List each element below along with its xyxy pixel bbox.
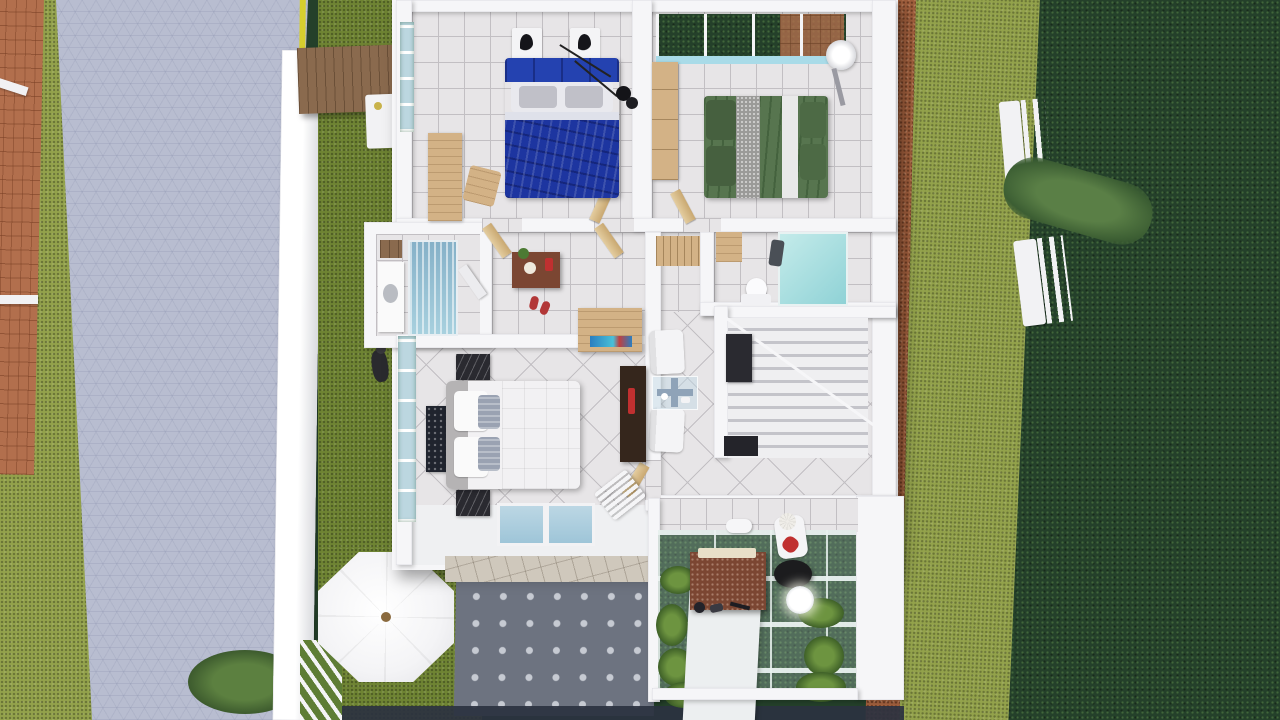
window-bedroom-blue [400,22,414,132]
floor-lamp-shade [774,560,812,588]
boundary-wall [273,50,322,720]
floor-lamp-glow [786,586,814,614]
glass-coffee-table [652,376,698,410]
toilet-tank [741,294,771,305]
floor-plan-render [0,0,1280,720]
desk [428,133,462,221]
blue-double-bed [505,58,619,198]
nightstand [456,354,490,380]
potted-plant [518,248,529,259]
ceiling-pendant [626,97,638,109]
bed-pillow-green [706,146,736,186]
linen-closet [656,236,700,266]
garden-bench [1013,235,1073,326]
bed-pillow-plaid [478,437,500,471]
floor-rug-art [426,406,448,472]
bed-throw-gray [736,96,760,198]
lamp-shade [520,34,533,54]
armchair [649,329,685,375]
aquarium-cabinet [578,308,642,352]
curb-shadow-band [300,706,904,720]
shower-enclosure-aqua [778,232,848,306]
nightstand [456,490,490,516]
bed-duvet-blue [505,120,619,198]
armchair [649,407,685,453]
bed-pillow-green [800,144,826,180]
window-planter-bedroom-green [656,14,846,58]
window-mullions [656,14,846,58]
bed-duvet-white [502,381,580,489]
bed-pillow-gray [565,86,603,108]
sink [383,284,398,303]
plant [656,604,688,646]
desk-bottle [694,602,705,613]
table-remote [681,397,690,403]
tv-panel-vase [628,388,635,414]
bed-pillow-gray [519,86,557,108]
bed-stripe-white [782,96,798,198]
terrace-tile-strip [654,498,858,532]
desk-pen [730,602,750,611]
wardrobe [652,62,678,180]
knit-ball [779,513,796,530]
desk-paper [698,548,756,558]
porch-skylight [497,503,546,546]
white-double-bed [446,381,580,489]
table-cup [661,393,668,400]
bed-pillow-green [706,100,736,140]
lamp-shade [578,34,591,54]
tv-panel [620,366,646,462]
washer-knob [374,102,382,110]
umbrella-pole-top [381,612,391,622]
porch-skylight [546,503,595,546]
bed-pillow-green [800,102,826,138]
green-double-bed [704,96,828,198]
terrace-desk [690,552,766,610]
window-glass-edge [656,56,846,64]
stone-entry-steps [445,556,657,582]
wall-outer-right [872,0,896,512]
standing-fan [826,40,856,70]
paper-roll [726,519,752,533]
wall-bedroom-divider [632,0,652,230]
stair-base-step [724,436,758,456]
vanity [716,232,742,262]
terrace-wall-right [856,496,904,700]
wall-master-top [396,334,586,348]
decor-plate [524,262,536,274]
dotted-paved-patio [454,576,656,716]
bath-shelf [380,240,402,258]
stair-storage-cabinet [726,334,752,382]
bed-pillow-plaid [478,395,500,429]
window-master-bedroom [398,336,416,522]
wall-stairs-top [714,306,896,318]
decor-vase [545,258,553,271]
wall-lamp [512,28,542,60]
shower-enclosure-blue [408,240,458,336]
terrace-frame-bottom [652,688,858,700]
plant [804,636,844,676]
table-cross-bar [671,378,678,407]
aquarium [590,336,632,347]
pergola-pole [0,295,38,304]
